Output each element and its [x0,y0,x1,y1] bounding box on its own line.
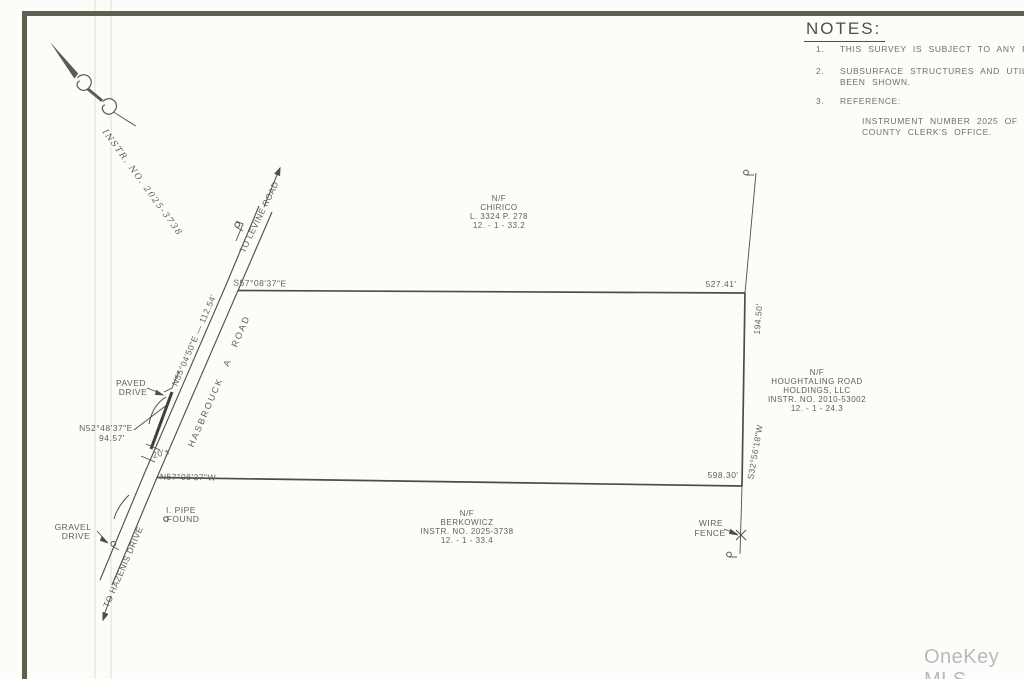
houghtaling-line-3: HOLDINGS, LLC [768,386,866,395]
parcel-label-berkowicz: N/F BERKOWICZ INSTR. NO. 2025-3738 12. -… [420,509,513,545]
wire-fence-label-line-2: FENCE [694,528,725,538]
wire-fence-label-line-1: WIRE [699,518,723,528]
berkowicz-line-2: BERKOWICZ [420,518,513,527]
drive-length-label: 94.57' [99,433,125,443]
note-reference-line-2: COUNTY CLERK'S OFFICE. [862,127,992,137]
bottom-boundary-bearing-label: N57°08'37"W [160,472,216,483]
top-boundary-bearing-label: S57°08'37"E [233,278,286,289]
houghtaling-line-2: HOUGHTALING ROAD [768,377,866,386]
gravel-drive-label-line-2: DRIVE [62,531,90,541]
note-2-number: 2. [816,66,824,76]
houghtaling-line-5: 12. - 1 - 24.3 [768,404,866,413]
drive-bearing-label: N52°48'37"E [79,423,133,433]
berkowicz-line-4: 12. - 1 - 33.4 [420,536,513,545]
note-reference-line-1: INSTRUMENT NUMBER 2025 OF DEEDS [862,116,1024,126]
top-boundary-dimension: 527.41' [705,279,736,289]
houghtaling-line-4: INSTR. NO. 2010-53002 [768,395,866,404]
note-3-number: 3. [816,96,824,106]
pipe-found-label-line-2: FOUND [167,514,200,524]
houghtaling-line-1: N/F [768,368,866,377]
paved-drive-label-line-2: DRIVE [119,387,147,397]
parcel-label-chirico: N/F CHIRICO L. 3324 P. 278 12. - 1 - 33.… [470,194,528,230]
north-arrow-icon [48,29,136,140]
chirico-line-2: CHIRICO [470,203,528,212]
berkowicz-line-1: N/F [420,509,513,518]
survey-sheet: NOTES: 1. THIS SURVEY IS SUBJECT TO ANY … [0,0,1024,679]
note-2-text-line-1: SUBSURFACE STRUCTURES AND UTILITIES [840,66,1024,76]
berkowicz-line-3: INSTR. NO. 2025-3738 [420,527,513,536]
chirico-line-4: 12. - 1 - 33.2 [470,221,528,230]
chirico-line-3: L. 3324 P. 278 [470,212,528,221]
notes-title: NOTES: [804,19,885,42]
sheet-border [22,11,1024,679]
bottom-boundary-dimension: 598.30' [707,470,738,480]
note-2-text-line-2: BEEN SHOWN. [840,77,911,87]
note-3-text: REFERENCE: [840,96,901,106]
note-1-number: 1. [816,44,824,54]
note-1-text: THIS SURVEY IS SUBJECT TO ANY FINDI [840,44,1024,54]
onekey-mls-watermark: OneKey MLS [924,646,1024,679]
parcel-label-houghtaling: N/F HOUGHTALING ROAD HOLDINGS, LLC INSTR… [768,368,866,413]
chirico-line-1: N/F [470,194,528,203]
boundary-extension-lines [740,173,756,554]
